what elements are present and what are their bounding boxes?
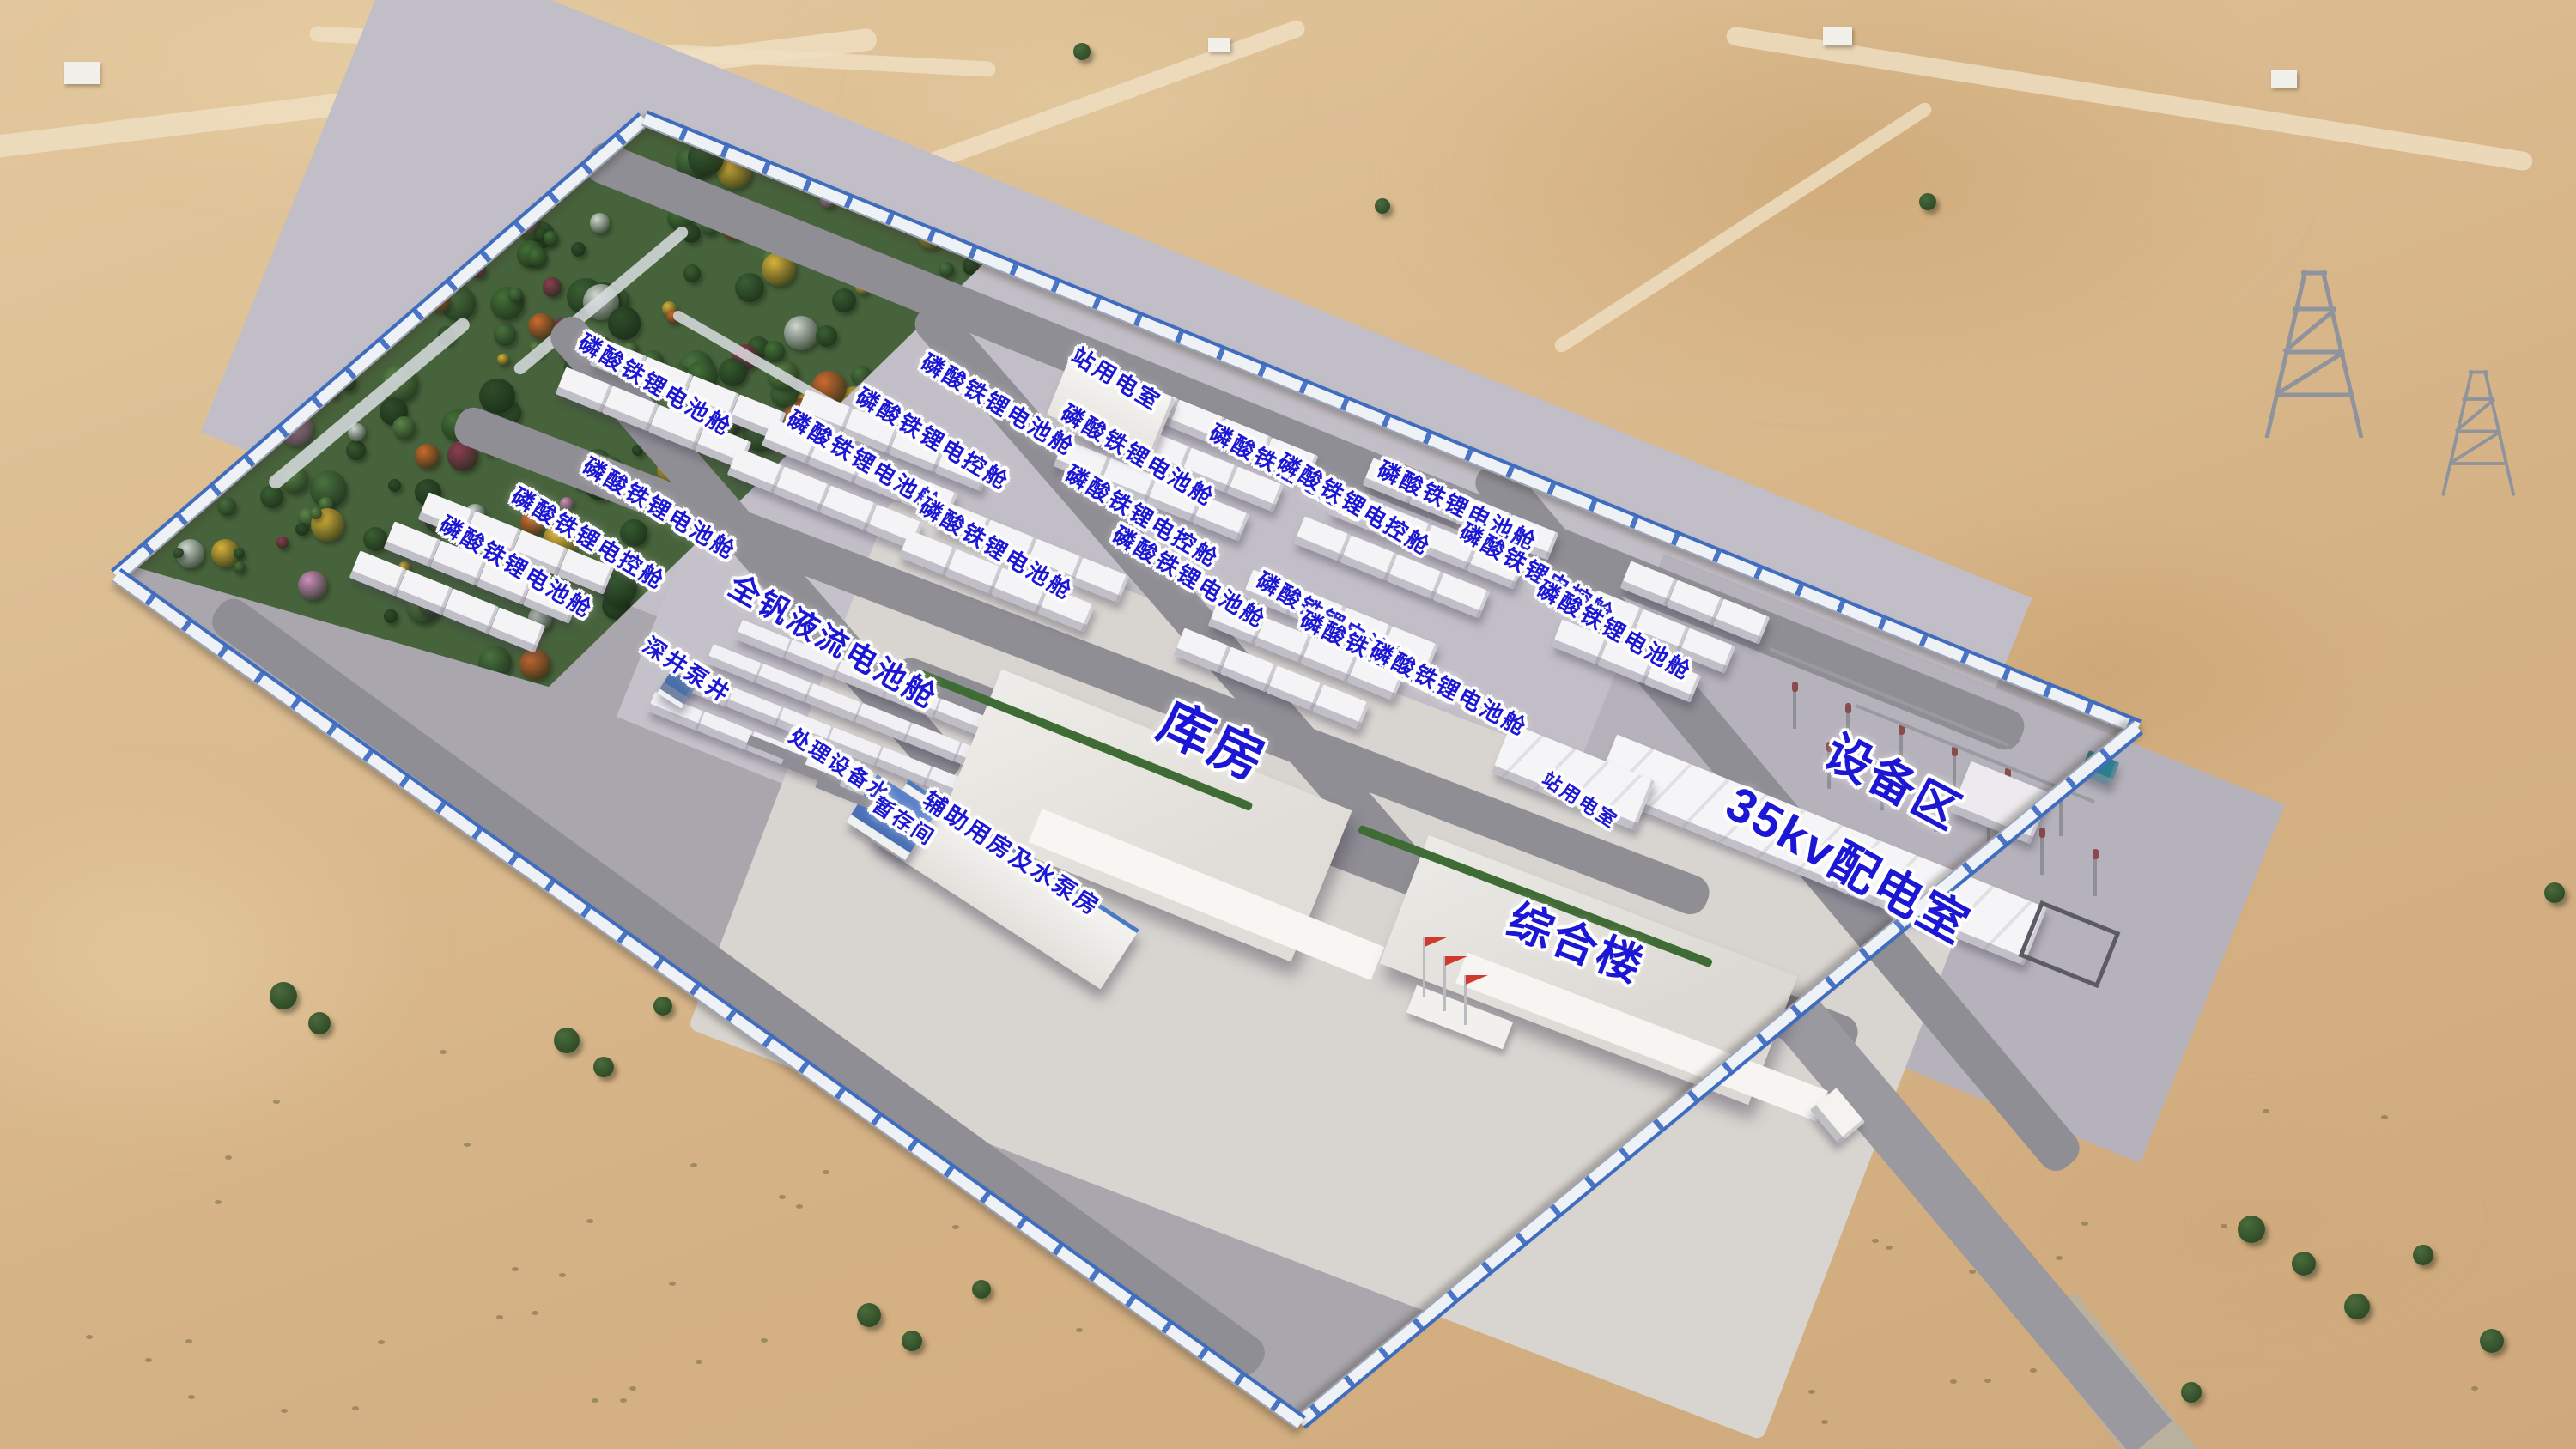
desert-shrub xyxy=(696,1360,702,1364)
desert-shrub xyxy=(559,1273,566,1277)
outside-tree-13 xyxy=(2181,1382,2202,1403)
outside-tree-8 xyxy=(2238,1216,2265,1243)
park-tree xyxy=(494,323,517,346)
outside-tree-7 xyxy=(972,1280,991,1299)
desert-shrub xyxy=(1950,1379,1957,1384)
desert-shrub xyxy=(86,1335,93,1339)
outside-tree-12 xyxy=(2480,1329,2504,1353)
park-tree xyxy=(388,479,401,492)
outside-tree-2 xyxy=(554,1028,580,1053)
desert-shrub xyxy=(592,1398,598,1403)
desert-shrub xyxy=(378,1340,385,1344)
outside-tree-4 xyxy=(653,997,672,1016)
desert-shrub xyxy=(2030,1368,2037,1373)
park-tree xyxy=(816,325,837,347)
outside-tree-11 xyxy=(2413,1245,2433,1265)
park-tree xyxy=(276,537,289,549)
outside-tree-14 xyxy=(1073,43,1091,60)
outside-tree-3 xyxy=(593,1057,614,1077)
desert-shrub xyxy=(1969,1270,1976,1274)
park-tree xyxy=(571,242,586,257)
desert-shrub xyxy=(952,1225,959,1229)
desert-shrub xyxy=(2263,1109,2269,1113)
park-tree xyxy=(384,609,398,623)
park-tree xyxy=(527,247,547,267)
park-tree xyxy=(939,262,954,277)
flag-red-0 xyxy=(1425,937,1447,947)
park-tree xyxy=(784,316,818,350)
distant-building-0 xyxy=(64,62,100,84)
park-tree xyxy=(298,571,327,600)
outside-tree-0 xyxy=(270,982,297,1009)
desert-shrub xyxy=(440,1050,447,1054)
desert-shrub xyxy=(352,1406,359,1410)
desert-shrub xyxy=(1076,1328,1083,1332)
desert-shrub xyxy=(145,1358,152,1362)
park-tree xyxy=(832,288,856,312)
desert-shrub xyxy=(620,1398,627,1403)
park-tree xyxy=(234,561,246,573)
desert-shrub xyxy=(273,1100,280,1104)
outside-tree-17 xyxy=(2544,882,2565,903)
desert-shrub xyxy=(225,1155,232,1160)
desert-shrub xyxy=(532,1311,538,1315)
desert-shrub xyxy=(1821,1420,1828,1424)
outside-tree-10 xyxy=(2344,1294,2370,1319)
outside-tree-1 xyxy=(308,1012,331,1034)
transmission-tower-1 xyxy=(2430,361,2527,496)
flag-red-2 xyxy=(1466,975,1488,985)
park-tree xyxy=(346,440,365,459)
desert-shrub xyxy=(2471,1386,2478,1391)
desert-shrub xyxy=(188,1395,195,1399)
desert-shrub xyxy=(669,1282,676,1286)
park-tree xyxy=(620,519,647,546)
outside-tree-9 xyxy=(2292,1252,2316,1276)
park-tree xyxy=(234,548,245,559)
substation-insulator-1 xyxy=(1845,703,1851,713)
substation-post-10 xyxy=(2040,835,2044,875)
desert-shrub xyxy=(1808,1390,1815,1394)
transmission-tower-0 xyxy=(2250,258,2379,438)
desert-shrub xyxy=(796,1204,803,1209)
flag-red-1 xyxy=(1445,956,1467,966)
desert-shrub xyxy=(1984,1379,1991,1383)
desert-shrub xyxy=(629,1386,636,1391)
park-tree xyxy=(543,277,562,296)
outside-tree-5 xyxy=(857,1303,881,1327)
desert-shrub xyxy=(215,1200,222,1204)
desert-shrub xyxy=(761,1338,768,1343)
park-tree xyxy=(764,341,785,361)
park-tree xyxy=(519,649,550,679)
distant-building-1 xyxy=(1823,27,1852,45)
desert-shrub xyxy=(823,1170,829,1174)
park-tree xyxy=(735,273,764,302)
desert-shrub xyxy=(185,1339,192,1343)
desert-shrub xyxy=(496,1315,503,1319)
desert-shrub xyxy=(2381,1115,2388,1119)
park-tree xyxy=(497,354,509,366)
desert-shrub xyxy=(2056,1256,2063,1260)
park-tree xyxy=(392,416,416,440)
substation-post-0 xyxy=(1793,689,1796,729)
park-tree xyxy=(683,264,702,282)
substation-post-11 xyxy=(2093,857,2097,896)
substation-insulator-0 xyxy=(1792,682,1798,692)
park-tree xyxy=(608,306,641,339)
park-tree xyxy=(544,231,558,246)
park-tree xyxy=(295,523,308,536)
desert-shrub xyxy=(586,1219,593,1223)
distant-building-3 xyxy=(1208,38,1230,52)
desert-shrub xyxy=(1886,1246,1893,1250)
aerial-site-rendering: 磷酸铁锂电池舱磷酸铁锂电控舱磷酸铁锂电池舱磷酸铁锂电池舱磷酸铁锂电池舱磷酸铁锂电… xyxy=(0,0,2576,1449)
desert-shrub xyxy=(512,1267,519,1271)
park-tree xyxy=(719,358,747,386)
substation-insulator-10 xyxy=(2039,828,2045,838)
distant-building-2 xyxy=(2271,70,2297,88)
park-tree xyxy=(217,497,236,516)
desert-shrub xyxy=(1872,1239,1879,1243)
outside-tree-15 xyxy=(1375,198,1390,214)
park-tree xyxy=(415,444,440,469)
desert-shrub xyxy=(2081,1222,2088,1226)
desert-shrub xyxy=(281,1409,288,1413)
outside-tree-6 xyxy=(902,1331,922,1351)
park-tree xyxy=(590,213,611,233)
desert-shrub xyxy=(2221,1224,2227,1228)
substation-insulator-11 xyxy=(2093,849,2099,859)
desert-shrub xyxy=(690,1163,697,1167)
outside-tree-16 xyxy=(1919,193,1936,210)
desert-shrub xyxy=(779,1195,786,1199)
desert-shrub xyxy=(464,1143,471,1147)
